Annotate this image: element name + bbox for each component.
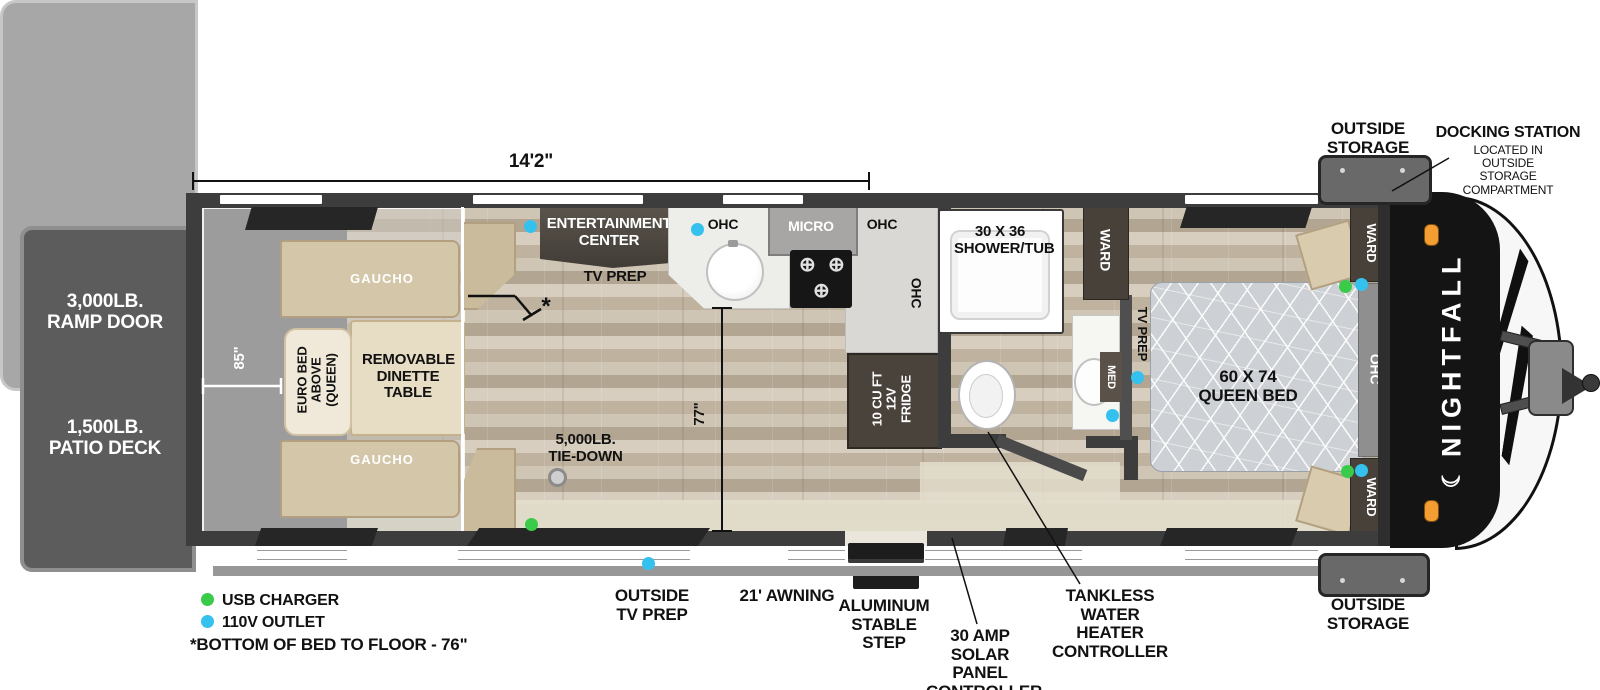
outside-tv-prep-label: OUTSIDE TV PREP xyxy=(604,587,700,624)
usb-charger-dot xyxy=(1341,465,1354,478)
outlet-dot xyxy=(1131,371,1144,384)
outlet-dot xyxy=(1106,409,1119,422)
usb-charger-dot xyxy=(201,593,214,606)
legend-usb-label: USB CHARGER xyxy=(222,592,342,610)
bedroom-ward-bottom-label: WARD xyxy=(1364,478,1378,517)
clearance-light xyxy=(1424,224,1439,246)
awning-bar xyxy=(925,550,1082,560)
ohc-counter-label: OHC xyxy=(908,278,923,309)
window-slab xyxy=(255,528,378,546)
outlet-dot xyxy=(642,557,655,570)
awning-bar xyxy=(788,550,845,560)
burner-icon: ⊕ xyxy=(799,255,816,275)
window-slab xyxy=(467,528,710,546)
window xyxy=(220,195,322,204)
burner-icon: ⊕ xyxy=(828,255,845,275)
legend-outlet-label: 110V OUTLET xyxy=(222,614,342,632)
bath-entry-floor xyxy=(920,462,1120,502)
awning-bar xyxy=(257,550,347,560)
docking-station-title: DOCKING STATION xyxy=(1418,124,1598,142)
entry-step-1 xyxy=(848,543,924,563)
window-slab xyxy=(1160,528,1298,546)
burner-icon: ⊕ xyxy=(813,281,830,301)
ohc-left-label: OHC xyxy=(703,217,743,232)
outlet-dot xyxy=(201,615,214,628)
window-slab xyxy=(1180,207,1312,228)
garage-slide-edge xyxy=(461,207,464,531)
outlet-dot xyxy=(524,220,537,233)
usb-charger-dot xyxy=(1339,280,1352,293)
clearance-light xyxy=(1424,500,1439,522)
tie-down-anchor-icon xyxy=(548,468,567,487)
patio-deck-label: 1,500LB. PATIO DECK xyxy=(45,418,165,460)
floorplan-canvas: 3,000LB. RAMP DOOR 1,500LB. PATIO DECK G… xyxy=(0,0,1600,690)
tie-down-label: 5,000LB. TIE-DOWN xyxy=(543,432,628,465)
fridge-label: 10 CU FT 12V FRIDGE xyxy=(871,367,914,431)
screw-icon xyxy=(1400,578,1405,583)
micro-label: MICRO xyxy=(771,219,851,234)
awning-bar xyxy=(1185,550,1318,560)
window xyxy=(1185,195,1318,204)
window-slab xyxy=(1003,528,1068,546)
awning-label: 21' AWNING xyxy=(727,587,847,606)
window xyxy=(473,195,643,204)
dinette-table-label: REMOVABLE DINETTE TABLE xyxy=(362,352,454,402)
crescent-moon-icon: ☾ xyxy=(1438,467,1467,489)
shower-tub-label: 30 X 36 SHOWER/TUB xyxy=(954,224,1046,257)
gaucho-bottom-label: GAUCHO xyxy=(342,453,422,467)
main-width-dim: 77" xyxy=(692,402,709,425)
solar-controller-label: 30 AMP SOLAR PANEL CONTROLLER xyxy=(926,627,1034,690)
bedroom-ward-top-label: WARD xyxy=(1364,224,1378,263)
docking-station-sub: LOCATED IN OUTSIDE STORAGE COMPARTMENT xyxy=(1456,144,1560,197)
window xyxy=(723,195,803,204)
gaucho-top-label: GAUCHO xyxy=(342,272,422,286)
usb-charger-dot xyxy=(525,518,538,531)
screw-icon xyxy=(1400,168,1405,173)
ramp-door-label: 3,000LB. RAMP DOOR xyxy=(45,292,165,334)
ohc-right-label: OHC xyxy=(862,217,902,232)
outside-storage-bottom-box xyxy=(1318,553,1430,597)
outside-storage-top-label: OUTSIDE STORAGE xyxy=(1323,120,1413,157)
awning-bar xyxy=(458,550,690,560)
screw-icon xyxy=(1340,168,1345,173)
tv-prep-label: TV PREP xyxy=(575,269,655,286)
bedroom-tv-prep-label: TV PREP xyxy=(1135,307,1149,361)
overall-length-dim: 14'2" xyxy=(491,152,571,173)
outlet-dot xyxy=(1355,278,1368,291)
screw-icon xyxy=(1340,578,1345,583)
outlet-dot xyxy=(1355,464,1368,477)
bed-floor-note: *BOTTOM OF BED TO FLOOR - 76" xyxy=(190,636,490,655)
faucet-icon xyxy=(728,240,738,247)
length-dim-line xyxy=(193,172,869,190)
toilet-bowl xyxy=(969,374,1003,418)
outlet-dot xyxy=(691,223,704,236)
stable-step-label: ALUMINUM STABLE STEP xyxy=(831,597,937,653)
ramp-door xyxy=(20,226,196,572)
outside-storage-bottom-label: OUTSIDE STORAGE xyxy=(1325,596,1411,633)
bath-ward-label: WARD xyxy=(1097,229,1112,271)
brand-logo: ☾ NIGHTFALL xyxy=(1437,252,1468,489)
rear-width-dim: 85" xyxy=(232,346,249,369)
sink xyxy=(706,243,764,301)
tankless-controller-label: TANKLESS WATER HEATER CONTROLLER xyxy=(1051,587,1169,662)
chassis-rail xyxy=(213,566,1395,576)
brand-logo-text: NIGHTFALL xyxy=(1437,252,1468,457)
outside-storage-top-box xyxy=(1318,155,1432,205)
entertainment-center-label: ENTERTAINMENT CENTER xyxy=(534,216,684,249)
bed-height-asterisk: * xyxy=(536,294,556,320)
med-label: MED xyxy=(1105,365,1117,389)
queen-bed-label: 60 X 74 QUEEN BED xyxy=(1198,368,1298,405)
euro-bed-label: EURO BED ABOVE (QUEEN) xyxy=(296,339,339,421)
left-wall xyxy=(186,193,202,546)
window-slab xyxy=(245,207,378,230)
hitch-ball xyxy=(1582,374,1600,392)
